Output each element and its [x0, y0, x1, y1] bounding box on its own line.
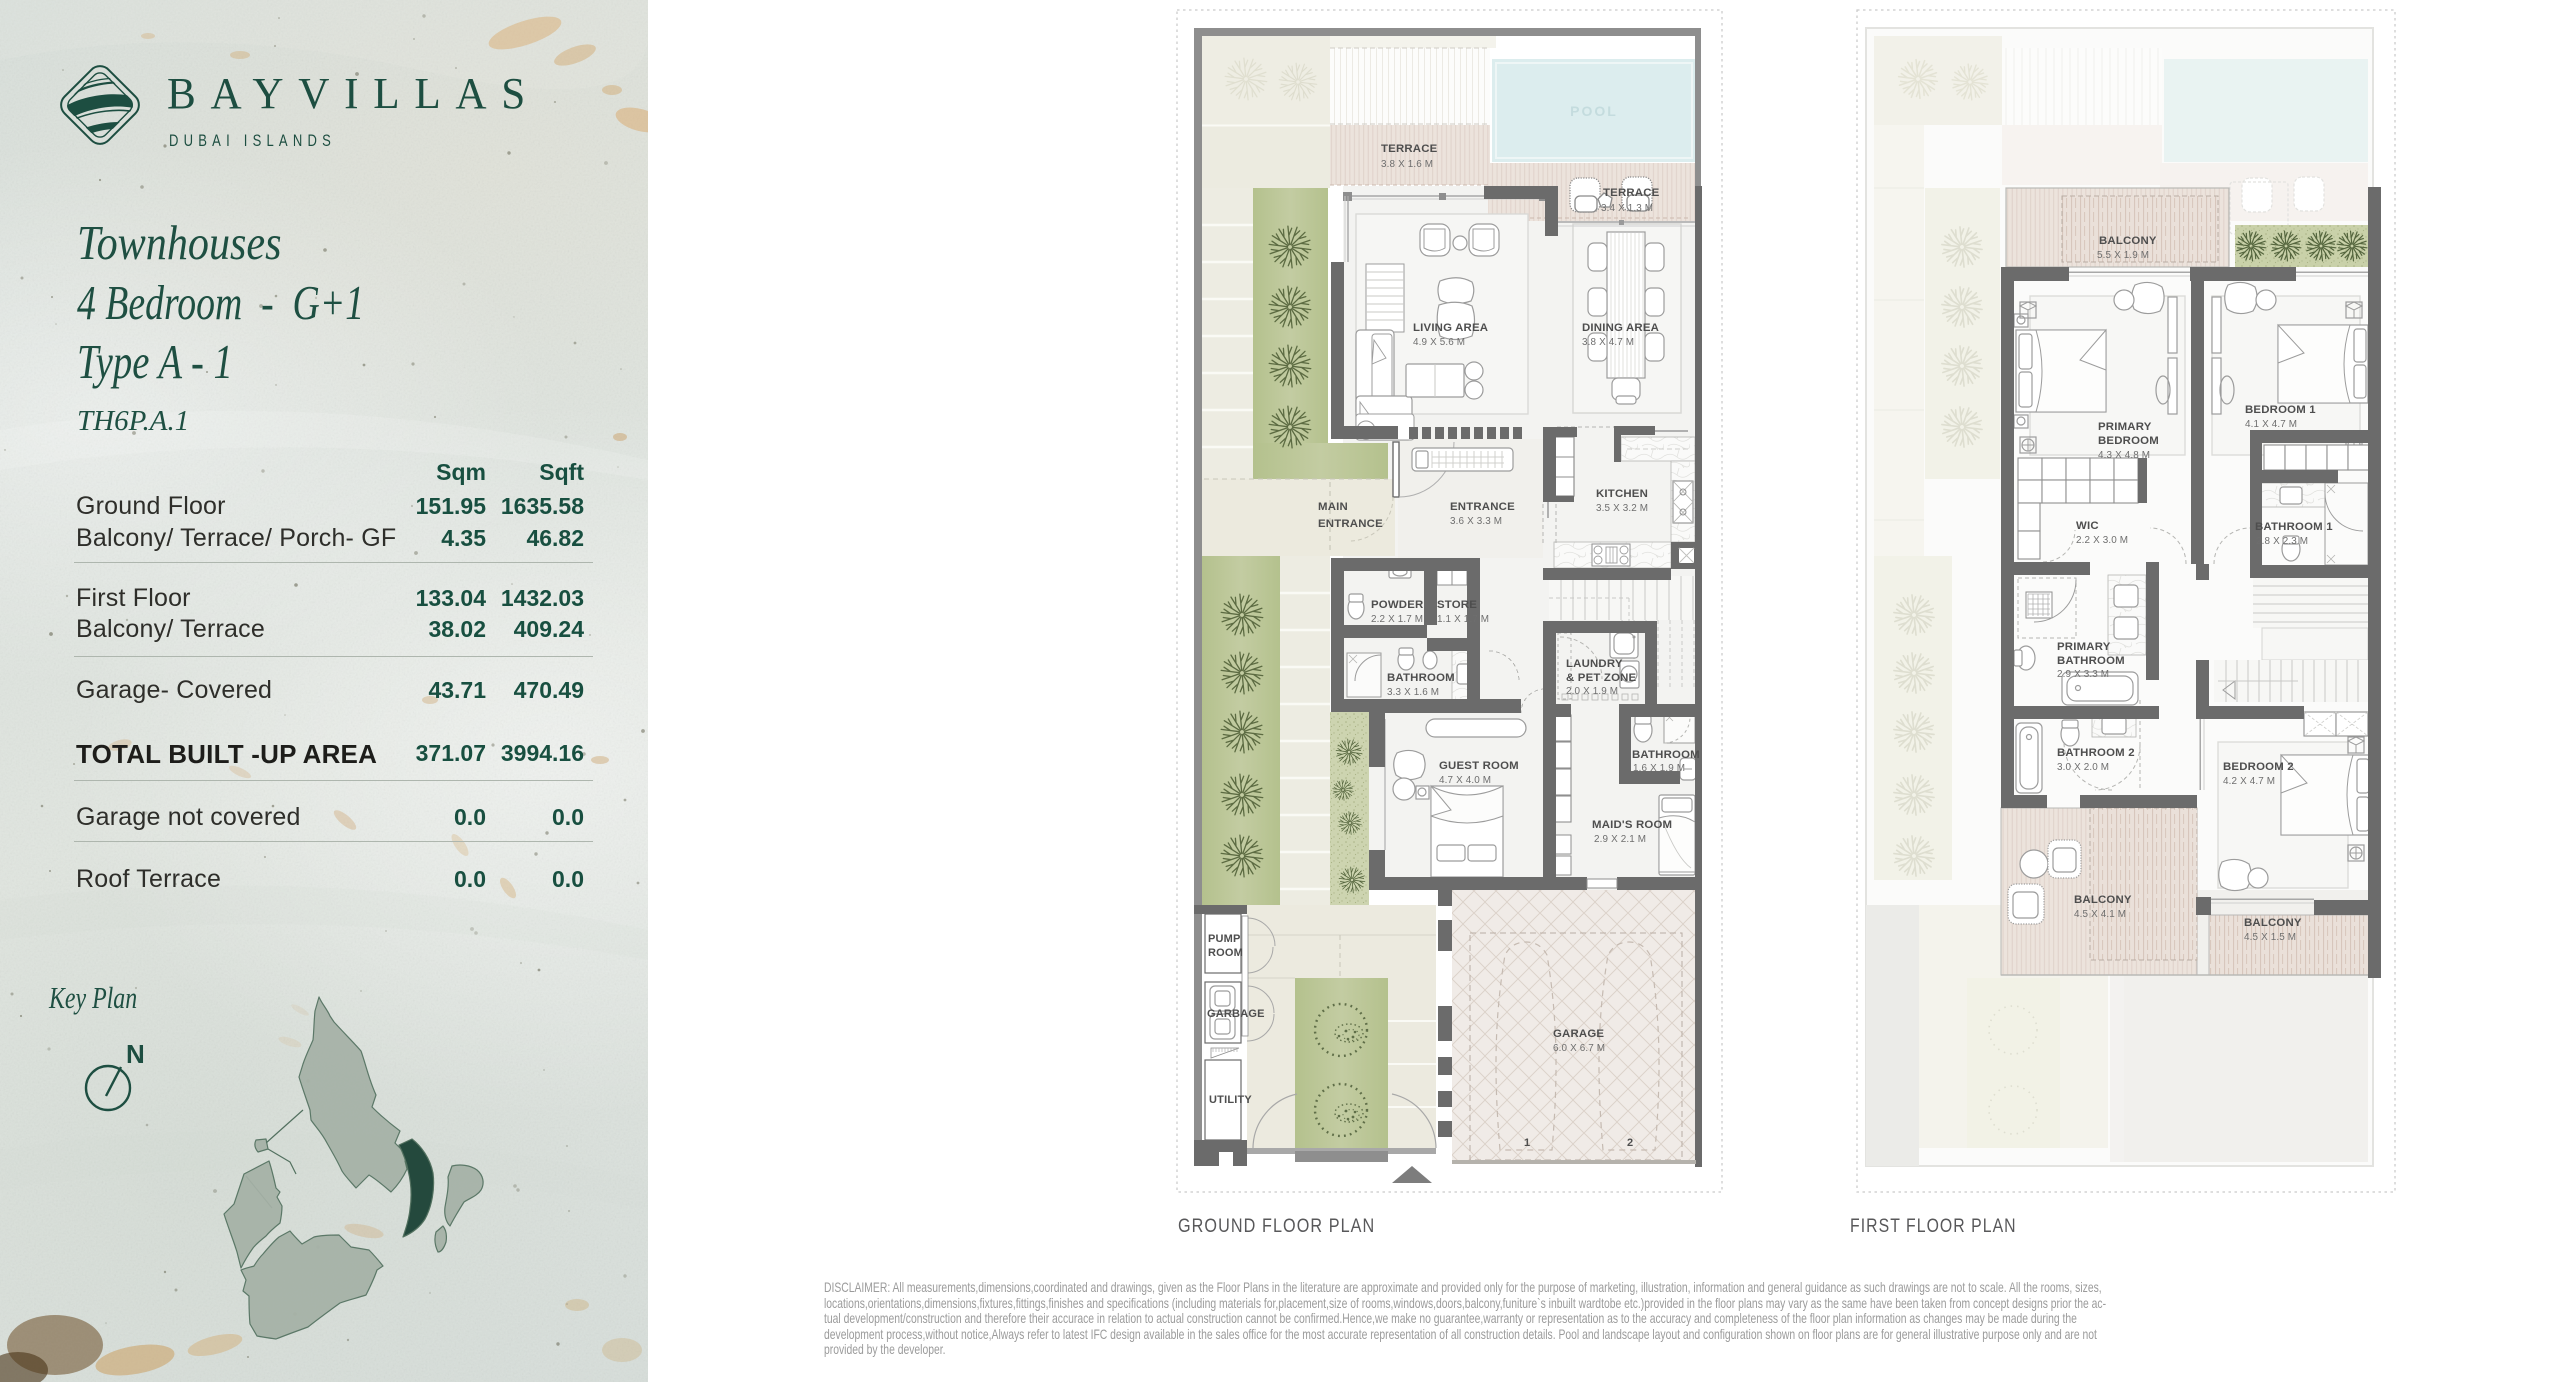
svg-text:4.5 X 4.1 M: 4.5 X 4.1 M	[2074, 909, 2126, 920]
svg-text:BEDROOM: BEDROOM	[2098, 435, 2159, 447]
svg-text:& PET ZONE: & PET ZONE	[1566, 672, 1637, 684]
svg-text:3.0 X 2.0 M: 3.0 X 2.0 M	[2057, 762, 2109, 773]
svg-text:UTILITY: UTILITY	[1209, 1094, 1252, 1106]
svg-text:5.5 X 1.9 M: 5.5 X 1.9 M	[2097, 250, 2149, 261]
svg-text:2.9 X 2.1 M: 2.9 X 2.1 M	[1594, 834, 1646, 845]
svg-text:4.2 X 4.7 M: 4.2 X 4.7 M	[2223, 776, 2275, 787]
svg-text:ROOM: ROOM	[1208, 947, 1243, 959]
svg-text:POOL: POOL	[1570, 103, 1618, 119]
svg-text:TERRACE: TERRACE	[1381, 143, 1438, 155]
svg-text:2.0 X 1.9 M: 2.0 X 1.9 M	[1566, 686, 1618, 697]
svg-text:2.2 X 1.7 M: 2.2 X 1.7 M	[1371, 614, 1423, 625]
svg-text:BATHROOM 1: BATHROOM 1	[2255, 521, 2333, 533]
svg-text:ENTRANCE: ENTRANCE	[1450, 501, 1515, 513]
svg-text:DUBAI ISLANDS: DUBAI ISLANDS	[169, 131, 336, 150]
svg-text:KITCHEN: KITCHEN	[1596, 488, 1648, 500]
svg-text:2.8 X 2.3 M: 2.8 X 2.3 M	[2256, 536, 2308, 547]
svg-text:PRIMARY: PRIMARY	[2098, 421, 2152, 433]
svg-text:BEDROOM 2: BEDROOM 2	[2223, 761, 2294, 773]
svg-text:1: 1	[1524, 1137, 1530, 1149]
svg-text:DINING AREA: DINING AREA	[1582, 322, 1659, 334]
svg-text:1.6 X 1.9 M: 1.6 X 1.9 M	[1633, 763, 1685, 774]
svg-text:MAID'S ROOM: MAID'S ROOM	[1592, 819, 1672, 831]
svg-text:PUMP: PUMP	[1208, 933, 1241, 945]
svg-text:GARBAGE: GARBAGE	[1207, 1008, 1265, 1020]
svg-text:BATHROOM: BATHROOM	[1387, 672, 1455, 684]
svg-text:4.9 X 5.6 M: 4.9 X 5.6 M	[1413, 337, 1465, 348]
svg-text:GUEST ROOM: GUEST ROOM	[1439, 760, 1519, 772]
svg-text:BATHROOM: BATHROOM	[2057, 655, 2125, 667]
svg-text:1.1 X 1.7 M: 1.1 X 1.7 M	[1437, 614, 1489, 625]
svg-text:4.7 X 4.0 M: 4.7 X 4.0 M	[1439, 775, 1491, 786]
svg-text:N: N	[126, 1039, 145, 1069]
svg-text:BATHROOM: BATHROOM	[1632, 749, 1700, 761]
svg-text:BALCONY: BALCONY	[2074, 894, 2132, 906]
svg-text:LAUNDRY: LAUNDRY	[1566, 658, 1623, 670]
svg-text:STORE: STORE	[1437, 599, 1477, 611]
svg-text:BAYVILLAS: BAYVILLAS	[167, 69, 540, 118]
svg-text:BALCONY: BALCONY	[2099, 235, 2157, 247]
svg-text:3.8 X 4.7 M: 3.8 X 4.7 M	[1582, 337, 1634, 348]
svg-text:3.4 X 1.3 M: 3.4 X 1.3 M	[1601, 203, 1653, 214]
svg-text:3.6 X 3.3 M: 3.6 X 3.3 M	[1450, 516, 1502, 527]
svg-text:LIVING AREA: LIVING AREA	[1413, 322, 1488, 334]
svg-text:4.5 X 1.5 M: 4.5 X 1.5 M	[2244, 932, 2296, 943]
svg-text:6.0 X 6.7 M: 6.0 X 6.7 M	[1553, 1043, 1605, 1054]
svg-text:POWDER: POWDER	[1371, 599, 1423, 611]
svg-text:WIC: WIC	[2076, 520, 2099, 532]
svg-text:4.3 X 4.8 M: 4.3 X 4.8 M	[2098, 450, 2150, 461]
svg-text:ENTRANCE: ENTRANCE	[1318, 518, 1383, 530]
svg-text:BALCONY: BALCONY	[2244, 917, 2302, 929]
svg-text:MAIN: MAIN	[1318, 501, 1348, 513]
svg-text:PRIMARY: PRIMARY	[2057, 641, 2111, 653]
svg-text:2: 2	[1627, 1137, 1633, 1149]
svg-text:2.9 X 3.3 M: 2.9 X 3.3 M	[2057, 669, 2109, 680]
svg-text:2.2 X 3.0 M: 2.2 X 3.0 M	[2076, 535, 2128, 546]
svg-text:TERRACE: TERRACE	[1603, 187, 1660, 199]
svg-text:4.1 X 4.7 M: 4.1 X 4.7 M	[2245, 419, 2297, 430]
svg-text:3.5 X 3.2 M: 3.5 X 3.2 M	[1596, 503, 1648, 514]
svg-text:BATHROOM 2: BATHROOM 2	[2057, 747, 2135, 759]
svg-text:3.3 X 1.6 M: 3.3 X 1.6 M	[1387, 687, 1439, 698]
svg-text:3.8 X 1.6 M: 3.8 X 1.6 M	[1381, 159, 1433, 170]
svg-text:GARAGE: GARAGE	[1553, 1028, 1604, 1040]
svg-text:BEDROOM 1: BEDROOM 1	[2245, 404, 2316, 416]
